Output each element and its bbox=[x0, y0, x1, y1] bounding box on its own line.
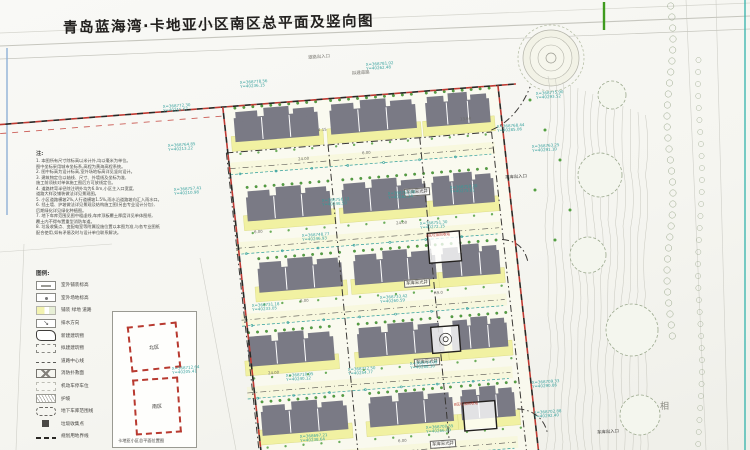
legend-item-label: 地下车库范围线 bbox=[61, 408, 93, 414]
legend-item: 地下车库范围线 bbox=[36, 405, 122, 418]
road-entrance-label: 道路出入口 bbox=[308, 53, 330, 61]
legend-item: 护坡 bbox=[36, 392, 122, 405]
coordinate-label: X=368764.85Y=40213.22 bbox=[168, 142, 196, 153]
skylight-label: 车库采光井 bbox=[430, 439, 456, 449]
coordinate-label: X=368710.95Y=40240.12 bbox=[286, 372, 314, 383]
legend-item-label: 排水方向 bbox=[61, 320, 79, 326]
notes-heading: 注: bbox=[36, 150, 184, 157]
bound-symbol-icon bbox=[36, 437, 56, 440]
legend-item-label: 道路中心线 bbox=[61, 358, 84, 364]
text-overlay: 青岛蓝海湾·卡地亚小区南区总平面及竖向图 注: 1. 本图所有尺寸除标高以米计外… bbox=[0, 0, 750, 450]
legend-item: 道路中心线 bbox=[36, 355, 122, 368]
legend-item: 铺装 绿地 道路 bbox=[36, 304, 122, 317]
coordinate-label: X=368768.44Y=40285.06 bbox=[497, 123, 525, 134]
keyplan-caption: 卡地亚小区总平面位置图 bbox=[118, 438, 164, 444]
coordinate-label: X=368712.50Y=40254.77 bbox=[348, 366, 376, 377]
drawing-title: 青岛蓝海湾·卡地亚小区南区总平面及竖向图 bbox=[63, 9, 374, 37]
fire-symbol-icon bbox=[36, 369, 56, 378]
coordinate-label: X=368700.55Y=40266.09 bbox=[426, 424, 454, 435]
coordinate-label: X=368756.12Y=40248.50 bbox=[322, 197, 350, 208]
coordinate-label: X=368772.30Y=40215.67 bbox=[163, 103, 191, 114]
dimension-label: 6.00 bbox=[398, 438, 407, 444]
dimension-label: 13.60 bbox=[460, 116, 471, 122]
coordinate-label: X=368702.88Y=40292.40 bbox=[534, 409, 562, 420]
dimension-label: 6.00 bbox=[254, 229, 263, 235]
coordinate-label: X=368709.33Y=40290.86 bbox=[532, 379, 560, 390]
coordinate-label: X=368751.30Y=40272.15 bbox=[420, 220, 448, 231]
margin-character: 相 bbox=[660, 399, 669, 412]
garage-entrance-label: 车库出入口 bbox=[505, 173, 527, 181]
dimension-label: 4.15 bbox=[318, 127, 327, 133]
skylight-label: 车库采光井 bbox=[404, 278, 430, 288]
keyplan-south-label: 南区 bbox=[152, 402, 162, 410]
legend-item-label: 规划用地界线 bbox=[61, 433, 89, 439]
elev-site-symbol-icon bbox=[36, 293, 56, 302]
trash-symbol-icon bbox=[42, 420, 49, 427]
new-bldg-symbol-icon bbox=[36, 330, 56, 341]
coordinate-label: X=368714.08Y=40268.30 bbox=[410, 360, 438, 371]
garage-entrance-label: 车库出入口 bbox=[597, 428, 619, 436]
garage-symbol-icon bbox=[36, 407, 56, 416]
dimension-label: 24.00 bbox=[268, 370, 279, 376]
parking-symbol-icon bbox=[36, 382, 56, 391]
legend-item-label: 室外场地标高 bbox=[61, 295, 89, 301]
note-line: 配合使用,如有矛盾及时与设计单位联系解决。 bbox=[36, 230, 184, 236]
coordinate-label: X=368775.90Y=40293.52 bbox=[536, 90, 564, 101]
legend-item-label: 新建建筑物 bbox=[61, 333, 84, 339]
legend-item: 垃圾收集点 bbox=[36, 418, 122, 431]
legend-item-label: 拟建建筑物 bbox=[61, 345, 84, 351]
trash-station-a-label: A区垃圾回收站 bbox=[426, 232, 450, 239]
centerline-symbol-icon bbox=[36, 362, 56, 363]
legend-item: 排水方向 bbox=[36, 317, 122, 330]
dimension-label: 6.00 bbox=[362, 150, 371, 156]
slope-symbol-icon bbox=[36, 394, 56, 403]
legend-item: 室外铺装标高 bbox=[36, 279, 122, 292]
coordinate-label: X=368763.25Y=40291.10 bbox=[532, 143, 560, 154]
coordinate-label: X=368697.21Y=40238.64 bbox=[300, 433, 328, 444]
drawing-sheet: 青岛蓝海湾·卡地亚小区南区总平面及竖向图 注: 1. 本图所有尺寸除标高以米计外… bbox=[0, 0, 750, 450]
legend-block: 图例: 室外铺装标高室外场地标高铺装 绿地 道路排水方向新建建筑物拟建建筑物道路… bbox=[36, 269, 122, 443]
plan-bldg-symbol-icon bbox=[36, 344, 56, 353]
coordinate-label: X=368733.42Y=40260.59 bbox=[380, 294, 408, 305]
paving-symbol-icon bbox=[36, 306, 56, 315]
legend-rows: 室外铺装标高室外场地标高铺装 绿地 道路排水方向新建建筑物拟建建筑物道路中心线消… bbox=[36, 279, 122, 443]
legend-item: 拟建建筑物 bbox=[36, 342, 122, 355]
legend-item: 规划用地界线 bbox=[36, 430, 122, 443]
coordinate-label: X=368781.02Y=40262.48 bbox=[366, 61, 394, 72]
dimension-label: R9.0 bbox=[434, 290, 443, 296]
dimension-label: 6.00 bbox=[300, 298, 309, 304]
trash-station-b-label: B区垃圾回收站 bbox=[454, 401, 478, 408]
legend-item: 消防扑救面 bbox=[36, 367, 122, 380]
notes-block: 注: 1. 本图所有尺寸除标高以米计外,均以毫米为单位。 图中坐标采用城市坐标系… bbox=[36, 150, 184, 235]
keyplan-south-zone: 南区 bbox=[132, 376, 182, 435]
coordinate-label: X=368757.41Y=40210.98 bbox=[174, 186, 202, 197]
notes-lines: 1. 本图所有尺寸除标高以米计外,均以毫米为单位。 图中坐标采用城市坐标系,高程… bbox=[36, 158, 184, 235]
legend-item-label: 护坡 bbox=[61, 396, 70, 402]
keyplan-inset: 北区 南区 卡地亚小区总平面位置图 bbox=[112, 311, 197, 448]
coordinate-label: X=368731.18Y=40233.05 bbox=[252, 302, 280, 313]
legend-item: 室外场地标高 bbox=[36, 292, 122, 305]
coordinate-label: X=368759.20Y=40275.81 bbox=[450, 184, 478, 195]
legend-item-label: 铺装 绿地 道路 bbox=[61, 307, 91, 313]
keyplan-north-label: 北区 bbox=[149, 343, 160, 351]
dimension-label: 24.00 bbox=[298, 156, 309, 162]
legend-item-label: 机动车停车位 bbox=[61, 383, 89, 389]
coordinate-label: X=368748.77Y=40246.93 bbox=[302, 232, 330, 243]
legend-heading: 图例: bbox=[36, 269, 122, 277]
legend-item-label: 消防扑救面 bbox=[61, 370, 84, 376]
legend-item-label: 室外铺装标高 bbox=[61, 282, 89, 288]
coordinate-label: X=368757.68Y=40262.34 bbox=[388, 190, 416, 201]
legend-item: 机动车停车位 bbox=[36, 380, 122, 393]
elev-pave-symbol-icon bbox=[36, 281, 56, 290]
legend-item-label: 垃圾收集点 bbox=[61, 421, 84, 427]
dimension-label: 24.00 bbox=[396, 220, 407, 226]
drain-symbol-icon bbox=[36, 319, 56, 328]
legend-item: 新建建筑物 bbox=[36, 329, 122, 342]
coordinate-label: X=368778.56Y=40236.15 bbox=[240, 79, 268, 90]
